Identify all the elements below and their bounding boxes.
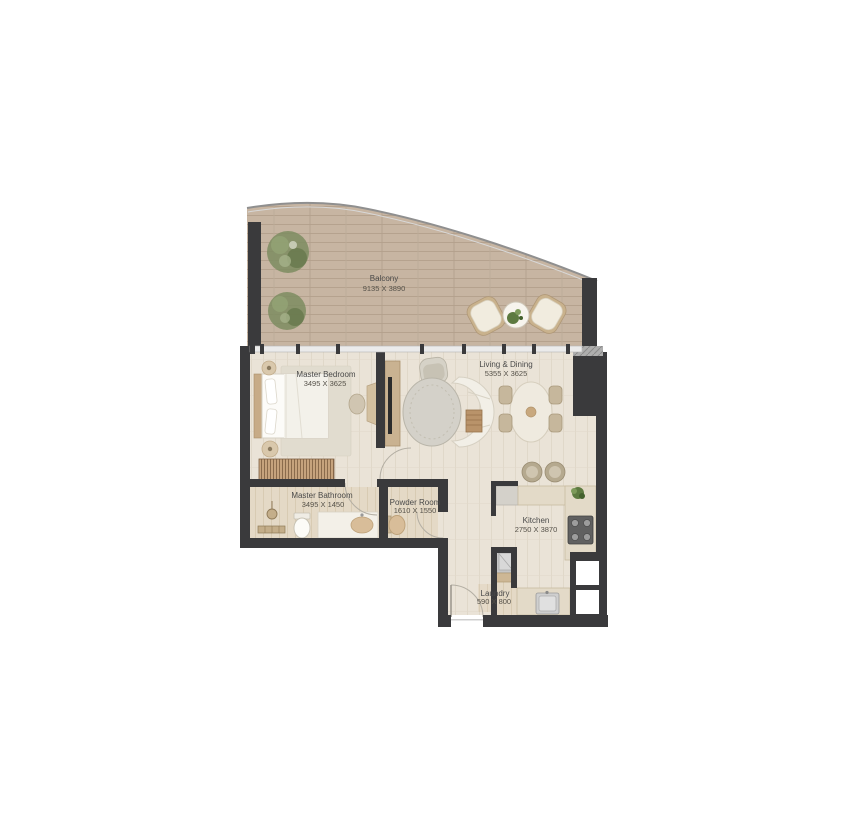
wall-bath-bottom xyxy=(240,538,448,548)
dining-chair xyxy=(549,386,562,404)
living-rug xyxy=(403,378,461,446)
glass-mullion xyxy=(336,344,340,354)
kitchen-sink xyxy=(536,591,559,614)
room-label-master-bathroom: Master Bathroom xyxy=(291,491,353,500)
tv-icon xyxy=(388,377,392,434)
appliance-fridge xyxy=(575,560,600,586)
room-dim-kitchen: 2750 X 3870 xyxy=(515,525,558,534)
wall-step-vertical xyxy=(438,548,448,621)
dining-chair xyxy=(549,414,562,432)
wall-kitchen-vertical xyxy=(491,481,496,516)
entry-threshold xyxy=(451,619,483,621)
wall-bottom-left xyxy=(438,615,451,627)
appliance-cabinet xyxy=(575,589,600,615)
glass-mullion xyxy=(462,344,466,354)
floor-plan: Balcony 9135 X 3890 Master Bedroom 3495 … xyxy=(0,0,852,831)
toilet xyxy=(294,513,310,538)
wall-bath-top-left xyxy=(250,479,345,487)
glass-mullion xyxy=(532,344,536,354)
room-dim-master-bedroom: 3495 X 3625 xyxy=(304,379,347,388)
pillow xyxy=(265,409,278,435)
wardrobe xyxy=(259,459,334,481)
bedside-lamp-icon xyxy=(267,366,271,370)
glass-mullion xyxy=(502,344,506,354)
glass-mullion xyxy=(250,344,255,354)
shower-head-icon xyxy=(267,509,277,519)
room-label-kitchen: Kitchen xyxy=(523,516,550,525)
balcony-zone xyxy=(247,203,597,346)
powder-toilet xyxy=(389,516,405,535)
glass-mullion xyxy=(420,344,424,354)
room-dim-master-bathroom: 3495 X 1450 xyxy=(302,500,345,509)
stove-icon xyxy=(568,516,593,544)
table-centerpiece xyxy=(526,407,536,417)
tree-icon xyxy=(268,292,306,330)
wall-partition-bedroom xyxy=(376,346,385,448)
wall-left xyxy=(240,346,250,548)
desk-chair xyxy=(349,394,365,414)
dining-chair xyxy=(499,414,512,432)
tree-icon xyxy=(267,231,309,273)
wall-column xyxy=(573,356,603,416)
room-dim-laundry: 590 X 800 xyxy=(477,597,511,606)
wall-laundry-left xyxy=(491,547,497,617)
wall-laundry-right xyxy=(511,547,517,588)
floor-plan-page: Balcony 9135 X 3890 Master Bedroom 3495 … xyxy=(0,0,852,831)
wall-bath-top-right xyxy=(377,479,448,487)
tv-console xyxy=(385,361,400,446)
coffee-table xyxy=(466,410,482,432)
wall-balcony-left xyxy=(248,222,261,346)
room-label-living-dining: Living & Dining xyxy=(479,360,532,369)
balcony-side-table xyxy=(503,302,529,328)
wall-balcony-right xyxy=(582,278,597,346)
bar-stool xyxy=(522,462,542,482)
bar-stool xyxy=(545,462,565,482)
bedside-lamp-icon xyxy=(268,447,272,451)
room-dim-living-dining: 5355 X 3625 xyxy=(485,369,528,378)
room-dim-balcony: 9135 X 3890 xyxy=(363,284,406,293)
wall-kitchen-horizontal xyxy=(491,481,518,486)
powder-room-zone xyxy=(387,516,405,535)
wall-bath-powder-divider xyxy=(379,487,388,538)
glass-mullion xyxy=(296,344,300,354)
glass-mullion xyxy=(566,344,570,354)
vanity-sink xyxy=(351,517,373,533)
room-label-balcony: Balcony xyxy=(370,274,398,283)
dining-chair xyxy=(499,386,512,404)
bath-bench xyxy=(258,526,285,533)
tall-cabinet xyxy=(496,486,518,505)
pillow xyxy=(265,379,278,405)
room-label-master-bedroom: Master Bedroom xyxy=(296,370,355,379)
vanity xyxy=(318,512,378,538)
glass-mullion xyxy=(260,344,264,354)
room-dim-powder-room: 1610 X 1550 xyxy=(394,506,437,515)
